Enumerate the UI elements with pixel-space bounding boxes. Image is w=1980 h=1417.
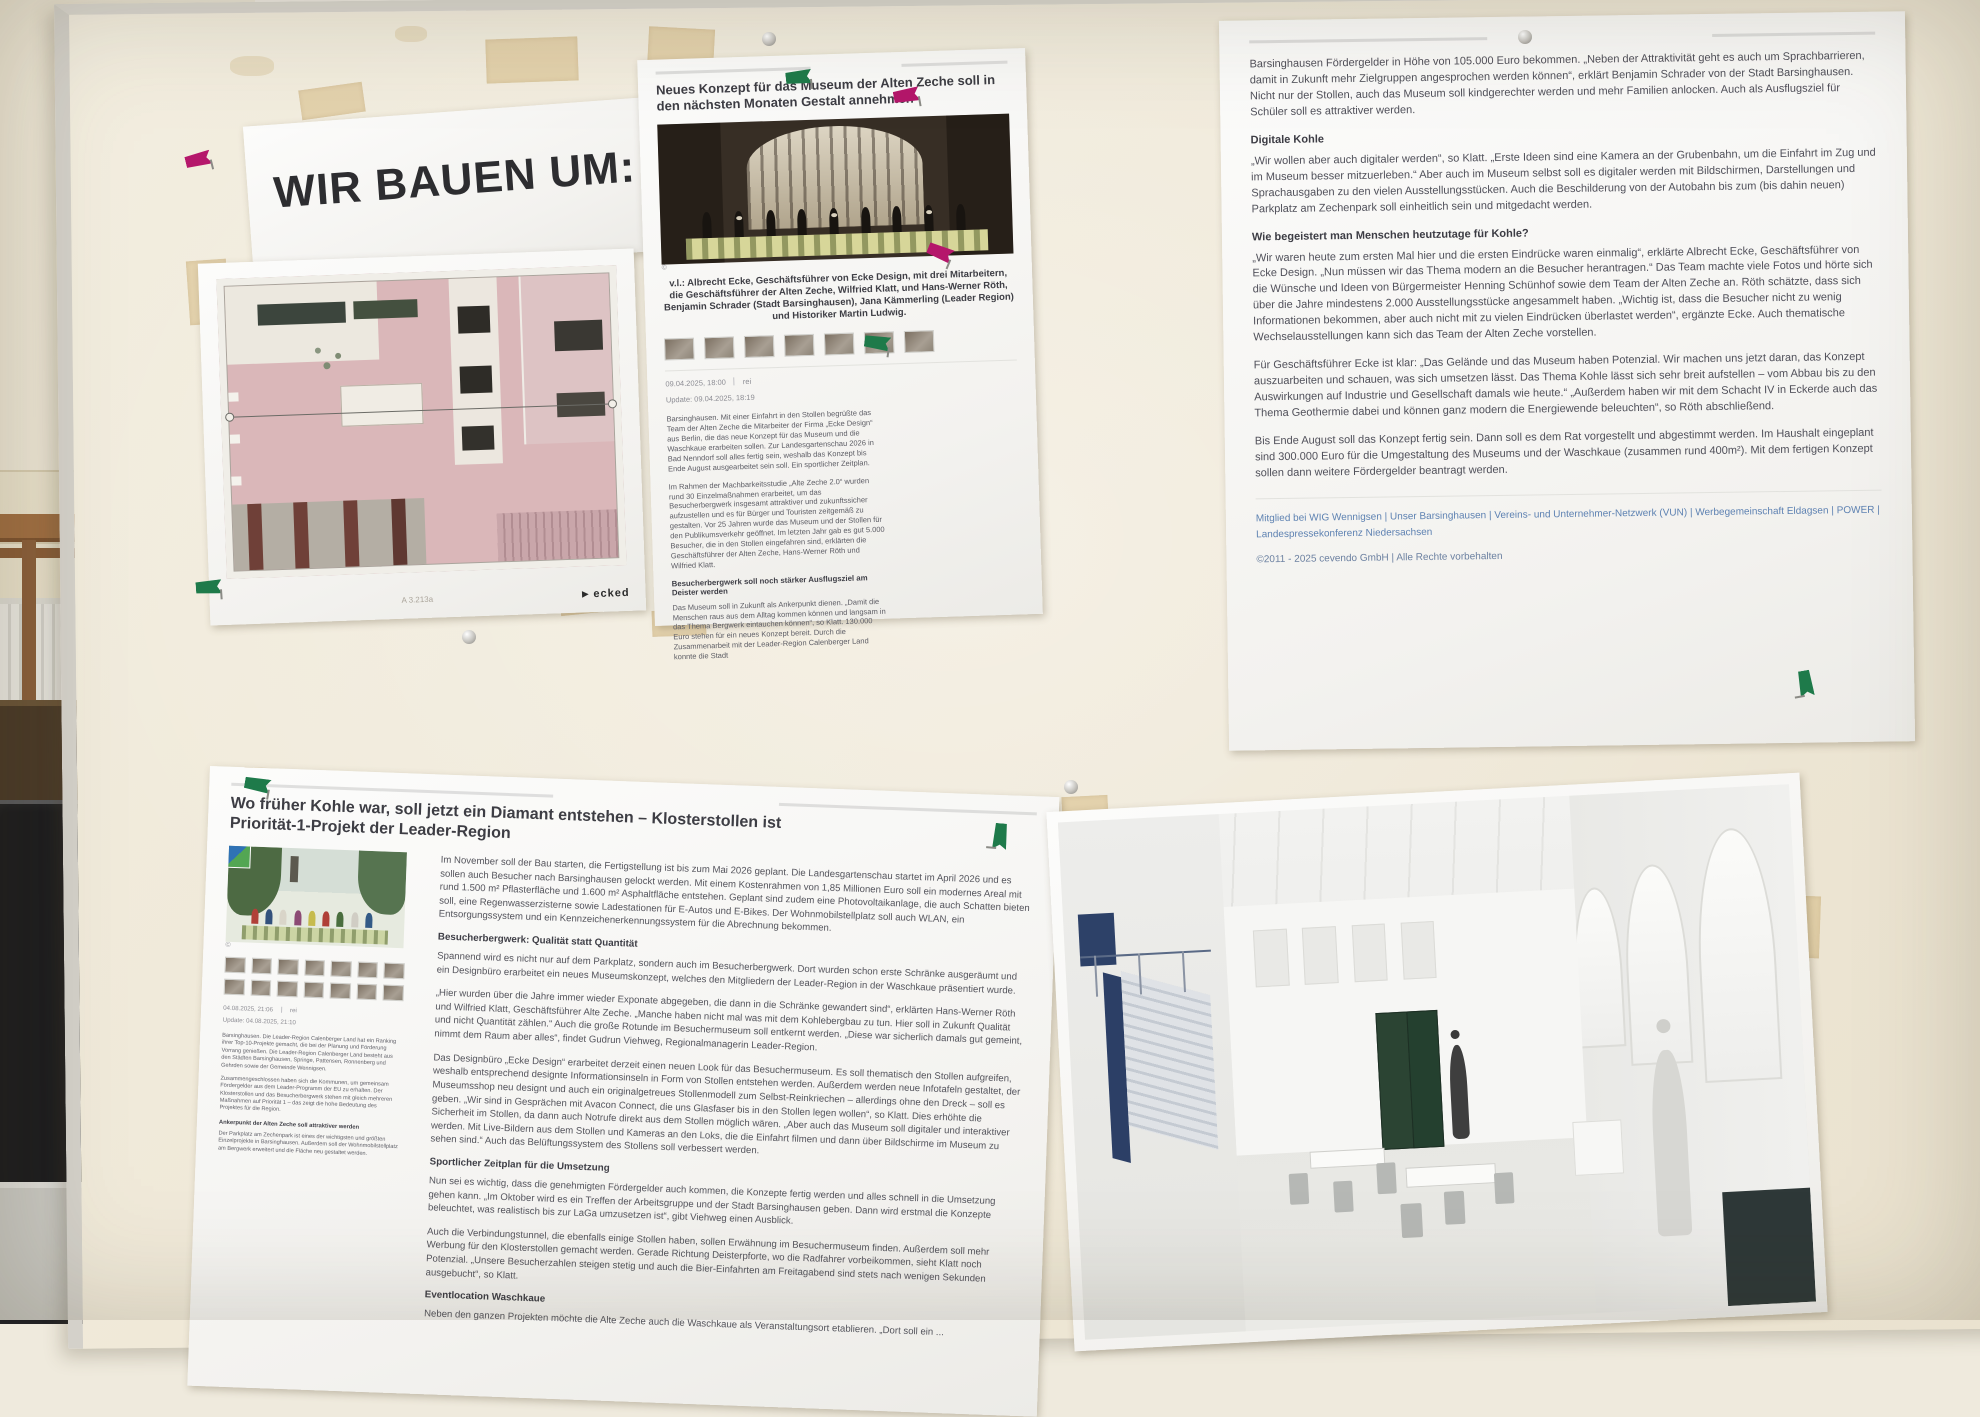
render-chair: [1289, 1173, 1310, 1205]
render-staircase: [1121, 971, 1218, 1150]
photo-person: [365, 913, 373, 928]
copyright-line: ©2011 - 2025 cevendo GmbH | Alle Rechte …: [1256, 545, 1882, 565]
green-flag-pin-icon: [986, 822, 1009, 854]
print-header-line: [779, 803, 1037, 815]
photo-helmet: [831, 213, 837, 217]
article-dateline: 04.08.2025, 21:06rei: [223, 1005, 403, 1019]
article-paragraph: Der Parkplatz am Zechenpark ist eines de…: [218, 1130, 399, 1159]
photo-person: [337, 912, 345, 927]
plan-mullion: [294, 502, 310, 568]
green-flag-pin-icon: [863, 334, 895, 358]
thumbnail-strip: [224, 957, 404, 980]
render-wall-panel: [1351, 924, 1388, 982]
plan-stairs: [497, 509, 619, 561]
render-wall-panel: [1253, 929, 1290, 987]
dateline-divider: [734, 378, 735, 386]
article-paragraph: Bis Ende August soll das Konzept fertig …: [1255, 426, 1882, 483]
thumbnail: [356, 984, 377, 1001]
play-triangle-icon: ▶: [582, 589, 589, 598]
thumbnail: [224, 979, 245, 996]
thumbnail: [224, 957, 245, 974]
render-table: [1310, 1148, 1386, 1169]
article-paragraph: Im Rahmen der Machbarkeitsstudie „Alte Z…: [668, 475, 886, 571]
article-paragraph: Zusammengeschlossen haben sich die Kommu…: [219, 1075, 400, 1118]
plan-fixture: [460, 366, 493, 394]
render-figure-head: [1450, 1030, 1459, 1039]
photo-person: [308, 911, 316, 926]
tape-strip: [485, 36, 578, 83]
article-museum-continuation-sheet: Barsinghausen Fördergelder in Höhe von 1…: [1219, 11, 1915, 751]
plan-mullion: [248, 504, 264, 570]
rendering-sheet: [1046, 773, 1827, 1352]
thumbnail: [330, 983, 351, 1000]
thumbnail: [278, 959, 299, 976]
plan-kitchen-units: [353, 299, 418, 319]
plan-window: [231, 476, 241, 485]
photo-caption: v.l.: Albrecht Ecke, Geschäftsführer von…: [662, 267, 1015, 327]
photo-person: [924, 205, 934, 232]
thumbnail: [331, 961, 352, 978]
photo-helmet: [736, 216, 742, 220]
print-header-line: [1712, 32, 1875, 37]
render-wall-panel: [1400, 921, 1437, 979]
thumbnail-strip: [224, 979, 404, 1002]
silver-pin-icon: [1064, 780, 1078, 794]
silver-pin-icon: [462, 630, 476, 644]
interior-rendering: [1058, 784, 1816, 1340]
plan-mullion: [392, 499, 408, 565]
photo-person: [280, 909, 288, 924]
silver-pin-icon: [1518, 30, 1532, 44]
photo-person: [322, 911, 330, 926]
plan-section-marker: [225, 412, 234, 421]
plan-section-marker: [608, 399, 617, 408]
ecke-design-logo: ▶ ecked: [582, 587, 630, 601]
photo-person: [351, 912, 359, 927]
article-paragraph: Barsinghausen. Mit einer Einfahrt in den…: [666, 408, 883, 474]
article-left-column: © 04.08.2025, 21:06rei: [212, 846, 409, 1320]
thumbnail: [251, 958, 272, 975]
green-flag-pin-icon: [195, 579, 226, 601]
thumbnail: [303, 982, 324, 999]
thumbnail: [784, 334, 815, 357]
thumbnail: [904, 330, 935, 353]
render-chair: [1400, 1203, 1422, 1238]
print-header-line: [1249, 37, 1487, 43]
dateline-divider: [281, 1007, 282, 1013]
photo-person: [956, 204, 966, 231]
footer-links[interactable]: Mitglied bei WIG Wennigsen | Unser Barsi…: [1256, 502, 1882, 544]
tape-residue: [230, 56, 274, 76]
plan-plant: [323, 362, 330, 369]
plan-island: [340, 383, 423, 427]
photo-person: [734, 211, 744, 238]
article-paragraph: „Wir wollen aber auch digitaler werden“,…: [1251, 145, 1878, 217]
thumbnail: [824, 333, 855, 356]
tape-residue: [395, 26, 427, 42]
article-headline: Neues Konzept für das Museum der Alten Z…: [656, 72, 1009, 115]
thumbnail: [383, 985, 404, 1002]
floorplan-drawing: [216, 265, 626, 579]
article-subhead: Besucherbergwerk soll noch stärker Ausfl…: [672, 572, 887, 597]
plan-window: [228, 392, 238, 401]
article-photo: [657, 113, 1013, 264]
article-subhead: Wie begeistert man Menschen heutzutage f…: [1252, 222, 1878, 243]
thumbnail: [664, 338, 695, 361]
article-source: rei: [290, 1007, 297, 1014]
silver-pin-icon: [762, 32, 776, 46]
article-subhead: Digitale Kohle: [1251, 125, 1877, 146]
article-source: rei: [743, 377, 752, 386]
photo-banner: [242, 925, 388, 945]
plan-kitchen-units: [257, 302, 346, 326]
photo-person: [766, 210, 776, 237]
floorplan-sheet: A 3.213a ▶ ecked: [198, 249, 646, 626]
thumbnail: [704, 337, 735, 360]
board-title: WIR BAUEN UM:: [272, 142, 637, 218]
render-pedestal: [1572, 1120, 1624, 1176]
thumbnail: [250, 980, 271, 997]
plan-glass-front: [232, 498, 426, 571]
plan-window: [230, 434, 240, 443]
article-paragraph: Für Geschäftsführer Ecke ist klar: „Das …: [1254, 350, 1881, 422]
article-paragraph: „Wir waren heute zum ersten Mal hier und…: [1252, 242, 1879, 346]
render-dark-pane: [1722, 1188, 1816, 1306]
article-subhead: Ankerpunkt der Alten Zeche soll attrakti…: [219, 1119, 399, 1132]
photo-tower: [290, 856, 299, 882]
photo-helmet: [926, 210, 932, 214]
article-paragraph: Das Designbüro „Ecke Design“ erarbeitet …: [430, 1051, 1027, 1168]
photo-person: [294, 910, 302, 925]
article-columns: © 04.08.2025, 21:06rei: [212, 846, 1035, 1343]
render-wall-panel: [1302, 926, 1339, 984]
thumbnail: [277, 981, 298, 998]
plan-fixture: [554, 320, 603, 352]
print-header: [1249, 32, 1875, 44]
render-blue-panel: [1077, 913, 1116, 967]
thumbnail: [304, 960, 325, 977]
video-logo-chip: [226, 846, 252, 869]
thumbnail: [357, 962, 378, 979]
plan-mullion: [344, 500, 360, 566]
article-paragraph: Im November soll der Bau starten, die Fe…: [438, 854, 1034, 944]
print-header-line: [902, 61, 1008, 67]
thumbnail-strip: [664, 328, 1017, 361]
plan-fixture: [462, 425, 495, 450]
photo-person: [829, 208, 839, 235]
article-klosterstollen-sheet: Wo früher Kohle war, soll jetzt ein Diam…: [187, 766, 1059, 1417]
thumbnail: [744, 335, 775, 358]
article-museum-sheet: Neues Konzept für das Museum der Alten Z…: [637, 48, 1043, 626]
article-update-line: Update: 09.04.2025, 18:19: [666, 385, 1018, 405]
article-paragraph: Auch die Verbindungstunnel, die ebenfall…: [425, 1225, 1021, 1301]
article-paragraph: Das Museum soll in Zukunft als Ankerpunk…: [672, 596, 889, 662]
plan-right-rooms: [518, 273, 614, 444]
article-photo: [226, 846, 407, 948]
thumbnail: [384, 963, 405, 980]
render-chair: [1333, 1181, 1354, 1213]
article-paragraph: Barsinghausen Fördergelder in Höhe von 1…: [1249, 49, 1876, 121]
green-flag-pin-icon: [785, 68, 817, 91]
plan-label: A 3.213a: [401, 595, 433, 605]
render-chair: [1494, 1172, 1515, 1204]
render-chair: [1444, 1190, 1466, 1225]
article-paragraph: „Hier wurden über die Jahre immer wieder…: [434, 987, 1030, 1063]
render-chair: [1376, 1163, 1397, 1195]
photo-person: [861, 207, 871, 234]
photo-tree: [357, 851, 407, 916]
photo-person: [251, 908, 259, 923]
article-main-column: Im November soll der Bau starten, die Fe…: [424, 854, 1035, 1343]
article-paragraph: Barsinghausen. Die Leader-Region Calenbe…: [221, 1033, 402, 1076]
photo-person: [265, 909, 273, 924]
plan-fixture: [457, 306, 490, 334]
article-update-line: Update: 04.08.2025, 21:10: [223, 1017, 403, 1031]
bench-leg: [22, 540, 36, 700]
divider: [1256, 489, 1882, 499]
